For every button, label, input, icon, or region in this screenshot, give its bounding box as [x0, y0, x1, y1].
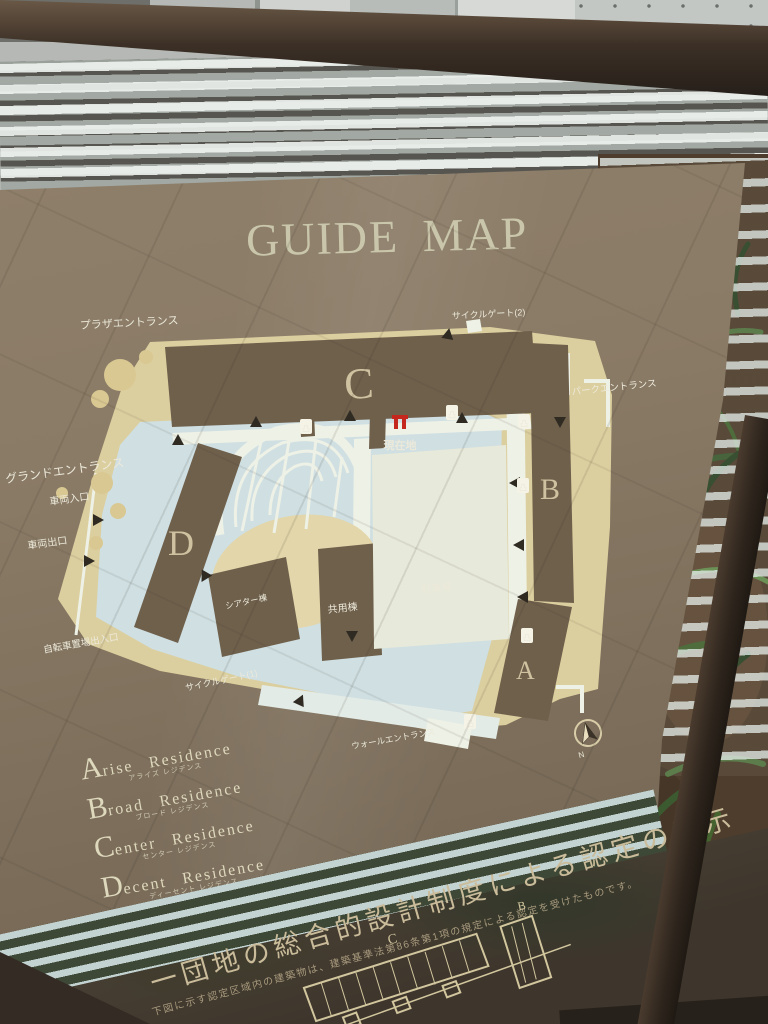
tree-icon	[91, 390, 109, 408]
legend-initial: D	[98, 868, 125, 904]
mini-map-c-label: C	[386, 932, 398, 949]
building-c-label: C	[343, 359, 375, 409]
building-a-label: A	[516, 656, 535, 685]
gate-icon: 凸	[518, 414, 530, 429]
building-b-label: B	[540, 473, 560, 506]
label-vehicle-exit: 車両出口	[27, 534, 68, 552]
label-plaza-entrance: プラザエントランス	[79, 314, 178, 332]
site-map: C B D A 凸	[0, 287, 768, 767]
tree-icon	[89, 536, 103, 550]
svg-text:N: N	[577, 750, 585, 760]
gate-icon: 凸	[521, 628, 533, 643]
gate-icon: 凸	[517, 478, 529, 493]
svg-text:凸: 凸	[302, 425, 310, 434]
svg-text:凸: 凸	[466, 720, 474, 729]
svg-text:凸: 凸	[448, 411, 456, 420]
gate-icon: 凸	[300, 419, 312, 434]
compass-north-icon: N	[570, 717, 607, 760]
tree-icon	[104, 359, 136, 391]
current-location-label: 現在地	[384, 438, 417, 452]
tree-icon	[139, 350, 153, 364]
legend-initial: C	[92, 829, 117, 865]
label-bicycle-parking: 自転車置場出入口	[42, 631, 119, 656]
svg-text:凸: 凸	[523, 634, 531, 643]
mini-map-b-label: B	[516, 898, 527, 913]
photo-scene: GUIDE MAP	[0, 0, 768, 1024]
building-d-label: D	[168, 523, 194, 563]
parking-building	[372, 445, 509, 649]
label-cycle-gate-2: サイクルゲート(2)	[452, 306, 526, 321]
legend-initial: A	[78, 750, 105, 786]
tree-icon	[110, 503, 126, 519]
sign-title: GUIDE MAP	[245, 206, 529, 266]
theater-bldg-shape	[208, 557, 300, 657]
svg-text:凸: 凸	[520, 420, 528, 429]
tree-icon	[91, 472, 113, 494]
svg-text:凸: 凸	[519, 484, 527, 493]
legend-initial: B	[85, 790, 110, 826]
gate-icon: 凸	[464, 714, 476, 729]
gate-icon: 凸	[446, 405, 458, 420]
label-vehicle-entrance: 車両入口	[49, 490, 90, 508]
